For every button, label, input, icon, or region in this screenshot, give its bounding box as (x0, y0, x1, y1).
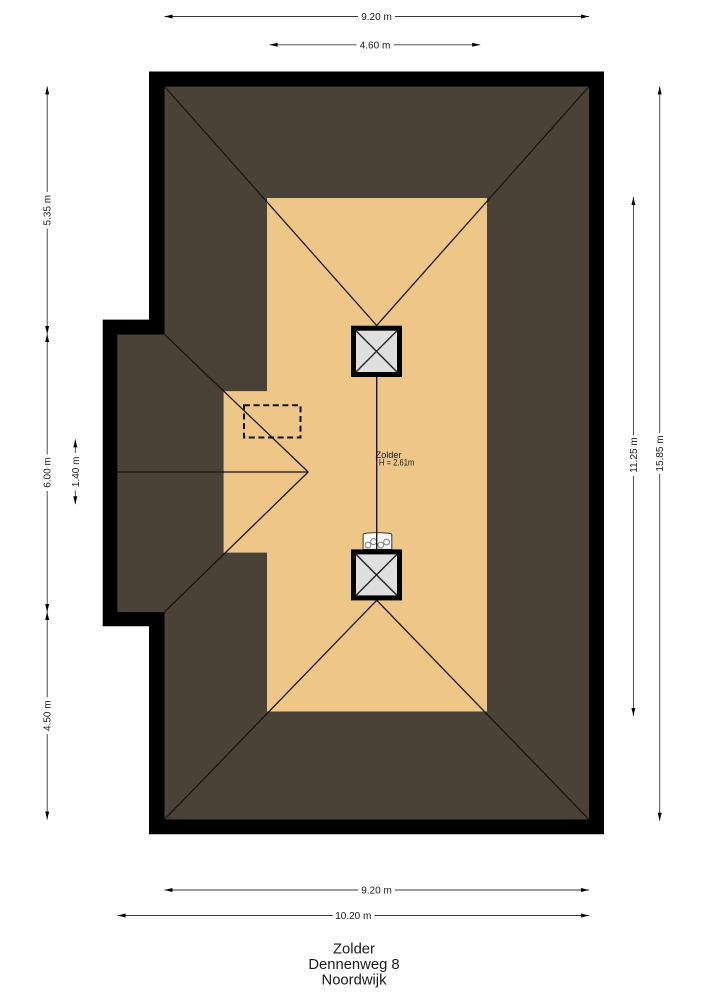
svg-text:5.35 m: 5.35 m (43, 195, 54, 226)
svg-text:Zolder: Zolder (333, 941, 375, 957)
svg-text:4.50 m: 4.50 m (43, 700, 54, 731)
svg-text:10.20 m: 10.20 m (335, 911, 371, 922)
svg-text:Noordwijk: Noordwijk (322, 973, 388, 989)
svg-text:4.60 m: 4.60 m (360, 40, 391, 51)
svg-text:6.00 m: 6.00 m (43, 457, 54, 488)
svg-text:9.20 m: 9.20 m (361, 12, 392, 23)
svg-text:Dennenweg 8: Dennenweg 8 (308, 957, 399, 973)
svg-text:15.85 m: 15.85 m (655, 435, 666, 471)
svg-text:H = 2.61m: H = 2.61m (379, 458, 414, 468)
svg-text:1.40 m: 1.40 m (71, 457, 82, 488)
svg-text:11.25 m: 11.25 m (629, 437, 640, 472)
svg-text:9.20 m: 9.20 m (361, 886, 392, 897)
